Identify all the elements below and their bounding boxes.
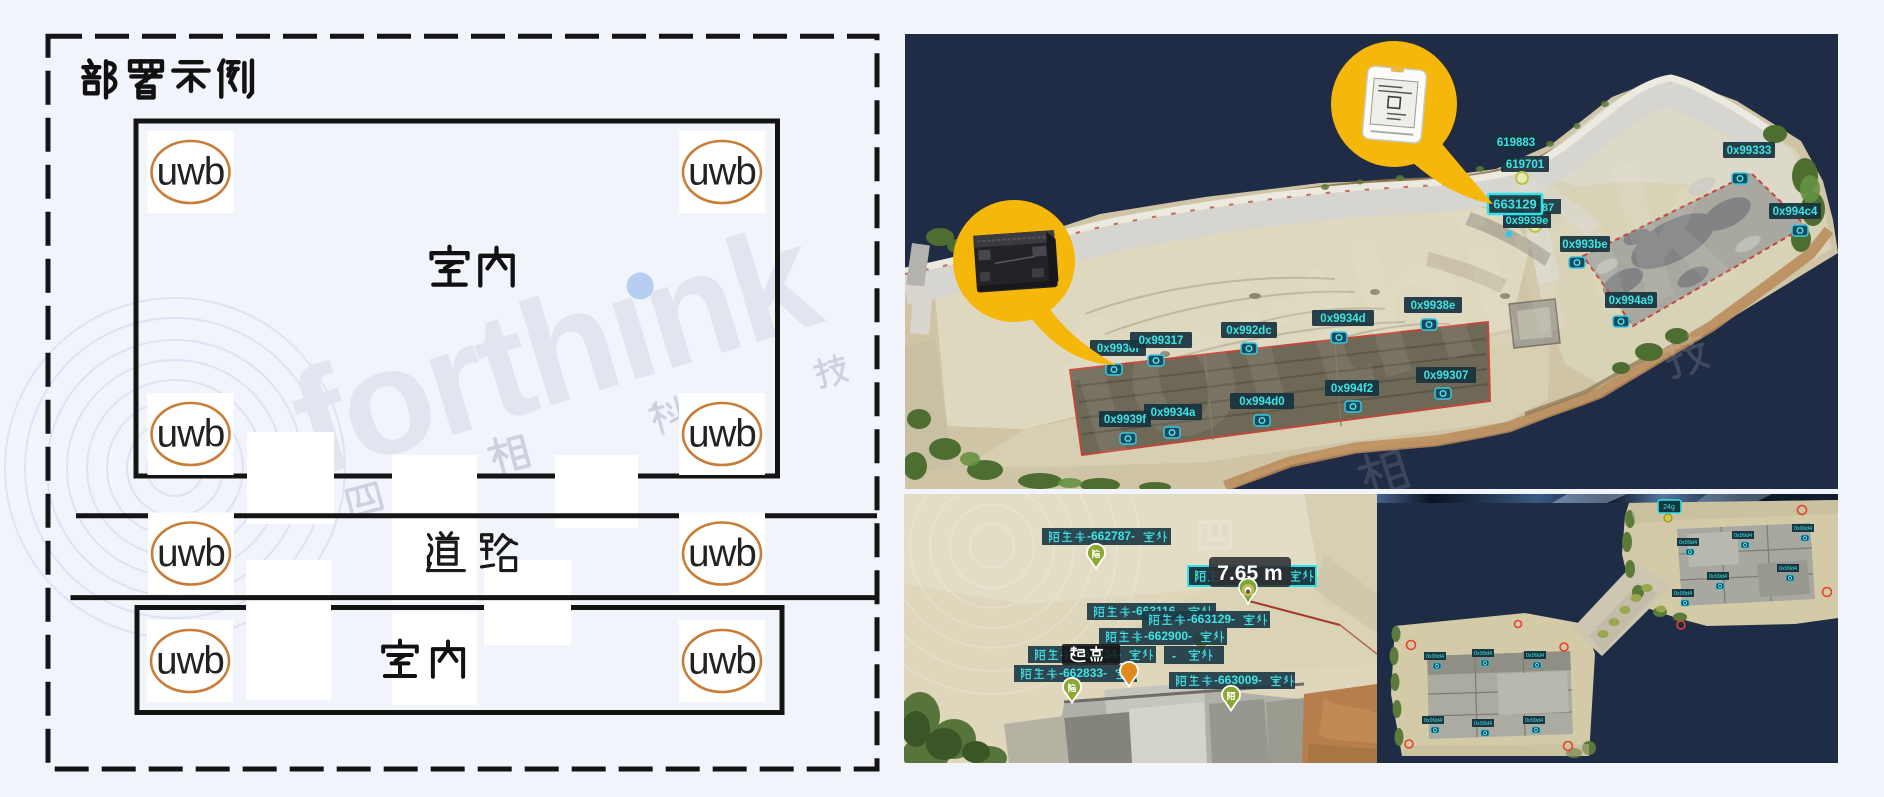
- svg-text:0x99333: 0x99333: [1727, 145, 1772, 157]
- svg-text:-662787-: -662787-: [1087, 529, 1135, 543]
- svg-text:uwb: uwb: [688, 151, 756, 194]
- svg-text:0x9939f: 0x9939f: [1104, 414, 1146, 426]
- svg-text:0x99317: 0x99317: [1139, 335, 1184, 347]
- svg-text:0x994d0: 0x994d0: [1239, 396, 1284, 408]
- svg-text:0x994c4: 0x994c4: [1773, 206, 1818, 218]
- svg-text:0x993be: 0x993be: [1562, 239, 1607, 251]
- svg-text:0x9934a: 0x9934a: [1151, 407, 1196, 419]
- svg-text:24g: 24g: [1663, 504, 1675, 511]
- svg-text:uwb: uwb: [688, 532, 756, 575]
- svg-text:0x99d4: 0x99d4: [1525, 718, 1543, 724]
- svg-text:0x99d4: 0x99d4: [1734, 533, 1752, 539]
- svg-text:uwb: uwb: [156, 640, 224, 683]
- svg-text:0x99d4: 0x99d4: [1474, 721, 1492, 727]
- svg-text:0x9938e: 0x9938e: [1411, 300, 1456, 312]
- svg-text:87: 87: [1542, 202, 1554, 214]
- svg-text:uwb: uwb: [157, 532, 225, 575]
- svg-text:0x99d4: 0x99d4: [1424, 718, 1442, 724]
- svg-text:663129: 663129: [1493, 197, 1536, 212]
- svg-text:-663129-: -663129-: [1187, 612, 1235, 626]
- svg-text:0x994a9: 0x994a9: [1609, 295, 1654, 307]
- svg-text:0x99307: 0x99307: [1424, 370, 1469, 382]
- svg-text:0x99d4: 0x99d4: [1674, 591, 1692, 597]
- svg-text:0x99d4: 0x99d4: [1779, 566, 1797, 572]
- svg-text:0x99d4: 0x99d4: [1474, 651, 1492, 657]
- svg-text:uwb: uwb: [157, 151, 225, 194]
- svg-text:0x99d4: 0x99d4: [1794, 526, 1812, 532]
- svg-text:0x99d4: 0x99d4: [1526, 653, 1544, 659]
- svg-text:uwb: uwb: [688, 413, 756, 456]
- svg-text:-662833-: -662833-: [1059, 666, 1107, 680]
- svg-text:-: -: [1172, 649, 1176, 663]
- svg-text:619701: 619701: [1506, 159, 1545, 171]
- svg-text:0x994f2: 0x994f2: [1331, 383, 1373, 395]
- svg-text:0x992dc: 0x992dc: [1226, 325, 1272, 337]
- svg-text:0x99d4: 0x99d4: [1426, 654, 1444, 660]
- svg-text:0x9934d: 0x9934d: [1320, 313, 1365, 325]
- svg-text:-663009-: -663009-: [1214, 673, 1262, 687]
- svg-text:uwb: uwb: [157, 413, 225, 456]
- svg-text:-662900-: -662900-: [1144, 629, 1192, 643]
- svg-text:619883: 619883: [1497, 137, 1535, 149]
- svg-text:0x9939e: 0x9939e: [1506, 215, 1549, 227]
- svg-text:0x99d4: 0x99d4: [1709, 574, 1727, 580]
- svg-text:uwb: uwb: [688, 640, 756, 683]
- svg-text:0x99d4: 0x99d4: [1679, 540, 1697, 546]
